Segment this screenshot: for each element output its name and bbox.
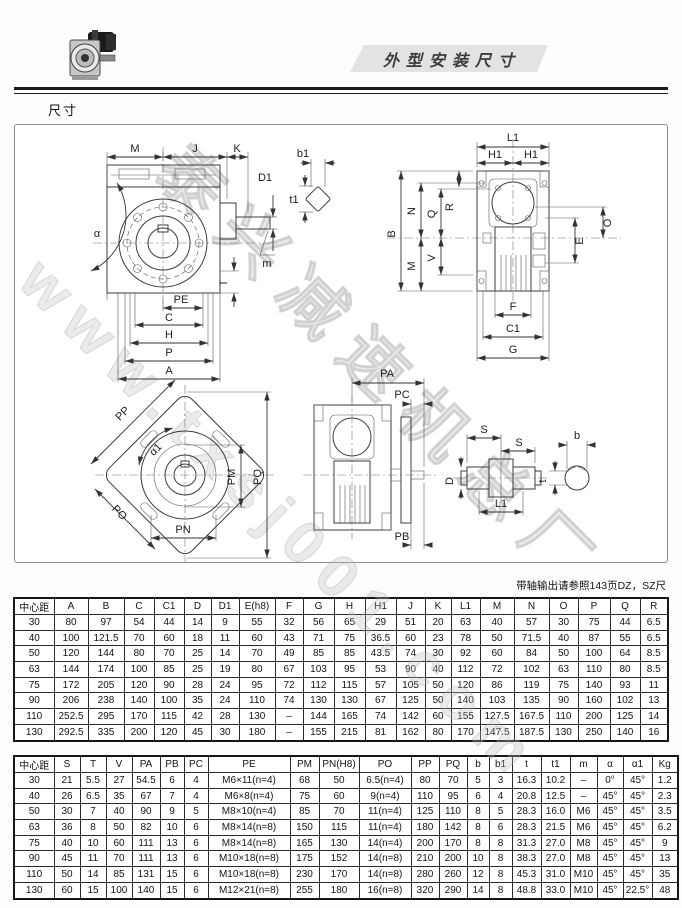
column-header: PA	[132, 756, 160, 773]
cell: 11	[640, 677, 668, 693]
cell: 6	[160, 773, 184, 789]
cell: 130	[334, 693, 365, 709]
cell: 45°	[623, 851, 652, 867]
column-header: O	[549, 598, 578, 615]
cell: 6.5	[640, 615, 668, 631]
cell: 45°	[623, 867, 652, 883]
cell: 4	[184, 788, 208, 804]
cell: 180	[319, 882, 359, 898]
cell: 165	[334, 709, 365, 725]
cell: 8	[80, 820, 106, 836]
cell: 63	[14, 662, 54, 678]
flange-view: PP α1 PO PM PQ PN	[91, 380, 277, 562]
cell: 80	[239, 662, 275, 678]
output-side-view: PA PC PB	[303, 368, 439, 549]
cell: 75	[14, 677, 54, 693]
cell: 40	[14, 630, 54, 646]
table-row: 7517220512090282495721121155710550120861…	[14, 677, 668, 693]
cell: 40	[54, 835, 80, 851]
table-row: 3080975444149553256652951206340573075446…	[14, 615, 668, 631]
cell: 110	[578, 662, 610, 678]
cell: 170	[124, 709, 154, 725]
section-label: 尺寸	[48, 100, 78, 119]
table-row: 110501485131156M10×18(n=8)23017014(n=8)2…	[14, 867, 678, 883]
cell: 14	[211, 646, 239, 662]
cell: 75	[290, 788, 319, 804]
cell: 63	[14, 820, 54, 836]
cell: 67	[365, 693, 396, 709]
cell: 20	[425, 615, 451, 631]
cell: 49	[275, 646, 303, 662]
cell: 115	[154, 709, 184, 725]
dim-label-PN: PN	[175, 524, 190, 536]
cell: 120	[54, 646, 88, 662]
table-row: 50307409095M8×10(n=4)857011(n=4)12511085…	[14, 804, 678, 820]
cell: 27.0	[541, 851, 570, 867]
cell: 45°	[623, 820, 652, 836]
cell: 97	[88, 615, 124, 631]
cell: 200	[578, 709, 610, 725]
cell: 33.0	[541, 882, 570, 898]
column-header: t1	[541, 756, 570, 773]
cell: 142	[396, 709, 425, 725]
cell: 140	[610, 724, 640, 740]
cell: 50	[14, 804, 54, 820]
cell: 10	[467, 851, 489, 867]
column-header: J	[396, 598, 425, 615]
cell: 67	[132, 788, 160, 804]
dim-label-PQ: PQ	[252, 469, 264, 485]
cell: 54.5	[132, 773, 160, 789]
cell: 6	[184, 867, 208, 883]
cell: 140	[132, 882, 160, 898]
cell: 30	[211, 724, 239, 740]
cell: 100	[54, 630, 88, 646]
cell: 19	[211, 662, 239, 678]
cell: 295	[88, 709, 124, 725]
cell: 6	[184, 820, 208, 836]
cell: 55	[610, 630, 640, 646]
cell: 70	[106, 851, 132, 867]
dim-label-R: R	[444, 203, 456, 211]
cell: 135	[514, 693, 549, 709]
cell: 144	[54, 662, 88, 678]
dim-label-E: E	[574, 237, 586, 244]
dim-label-B: B	[386, 230, 398, 237]
cell: 45°	[597, 835, 623, 851]
dim-label-C: C	[165, 312, 173, 324]
cell: 45°	[623, 773, 652, 789]
cell: 6	[184, 835, 208, 851]
cell: 40	[425, 662, 451, 678]
dim-label-N: N	[406, 207, 418, 215]
cell: 6.2	[652, 820, 678, 836]
cell: 80	[425, 724, 451, 740]
dim-label-F: F	[510, 301, 517, 313]
column-header: b	[467, 756, 489, 773]
cell: 45°	[597, 820, 623, 836]
cell: 170	[451, 724, 480, 740]
cell: 100	[154, 693, 184, 709]
cell: 90	[154, 677, 184, 693]
cell: 14(n=4)	[359, 835, 411, 851]
column-header: PP	[411, 756, 439, 773]
cell: 120	[154, 724, 184, 740]
cell: 63	[549, 662, 578, 678]
cell: 45°	[597, 851, 623, 867]
cell: 28.3	[512, 804, 541, 820]
cell: 80	[124, 646, 154, 662]
cell: M8	[570, 835, 597, 851]
cell: 144	[303, 709, 334, 725]
dim-label-PC: PC	[394, 389, 409, 401]
column-header: PB	[160, 756, 184, 773]
cell: 11	[80, 851, 106, 867]
cell: 320	[411, 882, 439, 898]
cell: 50	[106, 820, 132, 836]
cell: 45°	[597, 788, 623, 804]
cell: 72	[480, 662, 514, 678]
cell: 35	[184, 693, 211, 709]
cell: 11(n=4)	[359, 804, 411, 820]
cell: 48	[652, 882, 678, 898]
cell: 105	[396, 677, 425, 693]
cell: 9	[211, 615, 239, 631]
dim-label-b: b	[574, 430, 580, 442]
cell: 10	[160, 820, 184, 836]
cell: 175	[290, 851, 319, 867]
table-row: 633685082106M8×14(n=8)15011511(n=4)18014…	[14, 820, 678, 836]
cell: 2.3	[652, 788, 678, 804]
cell: 110	[239, 693, 275, 709]
cell: 115	[334, 677, 365, 693]
table-row: 75401060111136M8×14(n=8)16513014(n=4)200…	[14, 835, 678, 851]
cell: 100	[106, 882, 132, 898]
cell: 180	[411, 820, 439, 836]
cell: 125	[396, 693, 425, 709]
cell: 50	[425, 677, 451, 693]
cell: 45°	[623, 835, 652, 851]
dimensions-table-2: 中心距STVPAPBPCPEPMPN(H8)POPPPQbb1tt1mαα1Kg…	[13, 755, 679, 900]
cell: 115	[319, 820, 359, 836]
cell: 13	[160, 851, 184, 867]
cell: 43	[275, 630, 303, 646]
cell: 87	[578, 630, 610, 646]
column-header: K	[425, 598, 451, 615]
cell: 130	[14, 882, 54, 898]
cell: 70	[124, 630, 154, 646]
cell: 13	[640, 693, 668, 709]
column-header: PN(H8)	[319, 756, 359, 773]
cell: 4	[184, 773, 208, 789]
cell: 95	[334, 662, 365, 678]
cell: 75	[14, 835, 54, 851]
cell: M10×18(n=8)	[208, 851, 290, 867]
cell: 120	[451, 677, 480, 693]
cell: 120	[124, 677, 154, 693]
cell: 45°	[623, 804, 652, 820]
cell: 200	[411, 835, 439, 851]
cell: 5	[489, 804, 512, 820]
cell: 10	[80, 835, 106, 851]
header-rule-thin	[14, 93, 668, 94]
column-header: C	[124, 598, 154, 615]
table-row: 50120144807025147049858543.5743092608450…	[14, 646, 668, 662]
cell: M8	[570, 851, 597, 867]
cell: 200	[124, 724, 154, 740]
dim-label-H1: H1	[488, 149, 502, 161]
dim-label-P: P	[165, 347, 172, 359]
cell: 10.2	[541, 773, 570, 789]
cell: 50	[319, 773, 359, 789]
cell: 25	[184, 646, 211, 662]
cell: 36	[54, 820, 80, 836]
cell: 28.3	[512, 820, 541, 836]
cell: 29	[365, 615, 396, 631]
cell: 335	[88, 724, 124, 740]
column-header: E(h8)	[239, 598, 275, 615]
cell: 75	[549, 677, 578, 693]
cell: 85	[290, 804, 319, 820]
dim-label-J: J	[192, 143, 198, 155]
cell: 30	[14, 773, 54, 789]
table-row: 30215.52754.564M6×11(n=4)68506.5(n=4)807…	[14, 773, 678, 789]
column-header: A	[54, 598, 88, 615]
header-row: 中心距STVPAPBPCPEPMPN(H8)POPPPQbb1tt1mαα1Kg	[14, 756, 678, 773]
dim-label-S: S	[515, 437, 522, 449]
cell: 30	[425, 646, 451, 662]
column-header: Kg	[652, 756, 678, 773]
cell: 95	[239, 677, 275, 693]
dim-label-b1: b1	[297, 148, 309, 160]
cell: 206	[54, 693, 88, 709]
cell: 27.0	[541, 835, 570, 851]
cell: 252.5	[54, 709, 88, 725]
cell: 32	[275, 615, 303, 631]
cell: 142	[439, 820, 467, 836]
cell: 15	[160, 867, 184, 883]
column-header: PE	[208, 756, 290, 773]
cell: 20.8	[512, 788, 541, 804]
table-row: 1306015100140156M12×21(n=8)25518016(n=8)…	[14, 882, 678, 898]
dim-label-PM: PM	[226, 469, 238, 486]
cell: 110	[411, 788, 439, 804]
column-header: T	[80, 756, 106, 773]
cell: 43.5	[365, 646, 396, 662]
column-header: G	[303, 598, 334, 615]
cell: 4	[489, 788, 512, 804]
dim-label-PB: PB	[395, 531, 410, 543]
cell: 50	[425, 693, 451, 709]
cell: 51	[396, 615, 425, 631]
column-header: α	[597, 756, 623, 773]
column-header: B	[88, 598, 124, 615]
column-header: Q	[610, 598, 640, 615]
column-header: t	[512, 756, 541, 773]
cell: 102	[514, 662, 549, 678]
cell: 14	[80, 867, 106, 883]
cell: 60	[154, 630, 184, 646]
cell: 140	[124, 693, 154, 709]
cell: 35	[652, 867, 678, 883]
cell: 130	[549, 724, 578, 740]
dim-label-A: A	[165, 365, 173, 377]
cell: 119	[514, 677, 549, 693]
cell: 85	[303, 646, 334, 662]
cell: 150	[290, 820, 319, 836]
cell: 12.5	[541, 788, 570, 804]
cell: 75	[578, 615, 610, 631]
cell: 155	[303, 724, 334, 740]
cell: 167.5	[514, 709, 549, 725]
cell: 111	[132, 851, 160, 867]
cell: M6×8(n=4)	[208, 788, 290, 804]
cell: 93	[610, 677, 640, 693]
cell: 6	[184, 882, 208, 898]
cell: 165	[290, 835, 319, 851]
cell: 40	[106, 804, 132, 820]
cell: 180	[239, 724, 275, 740]
cell: 53	[365, 662, 396, 678]
cell: 25	[184, 662, 211, 678]
cell: 74	[396, 646, 425, 662]
cell: 16.3	[512, 773, 541, 789]
cell: 57	[514, 615, 549, 631]
cell: 11(n=4)	[359, 820, 411, 836]
cell: 15	[80, 882, 106, 898]
column-header: m	[570, 756, 597, 773]
cell: 9(n=4)	[359, 788, 411, 804]
column-header: N	[514, 598, 549, 615]
cell: M6×11(n=4)	[208, 773, 290, 789]
cell: 45.3	[512, 867, 541, 883]
dim-label-V: V	[426, 254, 438, 262]
dim-label-m: m	[262, 258, 271, 270]
cell: 90	[14, 693, 54, 709]
cell: M8×14(n=8)	[208, 820, 290, 836]
cell: 8	[467, 820, 489, 836]
dimensions-figure: M J K D1 α m T PE C H	[14, 124, 668, 563]
header-rule-thick	[14, 87, 668, 90]
cell: M8×14(n=8)	[208, 835, 290, 851]
column-header: b1	[489, 756, 512, 773]
cell: 7	[160, 788, 184, 804]
cell: 60	[106, 835, 132, 851]
cell: 12	[467, 867, 489, 883]
page-title: 外型安装尺寸	[383, 47, 521, 71]
cell: 60	[239, 630, 275, 646]
gearbox-photo	[62, 28, 122, 91]
cell: 131	[132, 867, 160, 883]
cell: –	[275, 709, 303, 725]
column-header: V	[106, 756, 132, 773]
dim-label-alpha: α	[94, 228, 101, 240]
cell: 280	[411, 867, 439, 883]
cell: 103	[480, 693, 514, 709]
cell: 130	[14, 724, 54, 740]
cell: 50	[549, 646, 578, 662]
cell: 5	[467, 773, 489, 789]
cell: 24	[211, 693, 239, 709]
dim-label-H: H	[165, 329, 173, 341]
column-header: 中心距	[14, 598, 54, 615]
cell: 8	[489, 882, 512, 898]
cell: 90	[396, 662, 425, 678]
cell: M6	[570, 804, 597, 820]
cell: 26	[54, 788, 80, 804]
cell: 147.5	[480, 724, 514, 740]
cell: 80	[54, 615, 88, 631]
cell: 60	[396, 630, 425, 646]
cell: 92	[451, 646, 480, 662]
cell: 172	[54, 677, 88, 693]
dim-label-PP: PP	[113, 404, 132, 423]
cell: 31.3	[512, 835, 541, 851]
cell: 13	[652, 851, 678, 867]
dim-label-H1: H1	[524, 149, 538, 161]
cell: 140	[578, 677, 610, 693]
cell: 24	[211, 677, 239, 693]
cell: 36.5	[365, 630, 396, 646]
header-row: 中心距ABCC1DD1E(h8)FGHH1JKL1MNOPQR	[14, 598, 668, 615]
dim-label-M: M	[406, 261, 418, 270]
column-header: PQ	[439, 756, 467, 773]
cell: 14	[467, 882, 489, 898]
cell: 22.5°	[623, 882, 652, 898]
column-header: P	[578, 598, 610, 615]
dim-label-PA: PA	[380, 368, 395, 380]
cell: 40	[14, 788, 54, 804]
cell: 127.5	[480, 709, 514, 725]
cell: 30	[549, 615, 578, 631]
cell: 45°	[623, 788, 652, 804]
cell: 95	[439, 788, 467, 804]
cell: 5	[184, 804, 208, 820]
cell: 60	[425, 709, 451, 725]
cell: 81	[365, 724, 396, 740]
cell: 8	[467, 804, 489, 820]
cell: 111	[132, 835, 160, 851]
cell: 54	[124, 615, 154, 631]
front-view: M J K D1 α m T PE C H	[91, 143, 277, 382]
cell: 63	[451, 615, 480, 631]
table-row: 90451170111136M10×18(n=8)17515214(n=8)21…	[14, 851, 678, 867]
cell: 84	[514, 646, 549, 662]
cell: 45°	[597, 804, 623, 820]
column-header: H1	[365, 598, 396, 615]
cell: 74	[365, 709, 396, 725]
dimension-drawings: M J K D1 α m T PE C H	[15, 125, 667, 562]
dim-label-G: G	[509, 344, 518, 356]
cell: 75	[334, 630, 365, 646]
cell: 45	[54, 851, 80, 867]
cell: 18	[184, 630, 211, 646]
cell: –	[570, 788, 597, 804]
cell: 16(n=8)	[359, 882, 411, 898]
cell: 130	[319, 835, 359, 851]
cell: 14(n=8)	[359, 851, 411, 867]
dim-label-L1: L1	[507, 132, 519, 144]
dim-label-S: S	[480, 424, 487, 436]
cell: 71	[303, 630, 334, 646]
cell: M10	[570, 882, 597, 898]
cell: M12×21(n=8)	[208, 882, 290, 898]
dim-label-C1: C1	[506, 323, 520, 335]
cell: 31.0	[541, 867, 570, 883]
cell: 44	[154, 615, 184, 631]
cell: 110	[439, 804, 467, 820]
cell: 8.5	[640, 662, 668, 678]
